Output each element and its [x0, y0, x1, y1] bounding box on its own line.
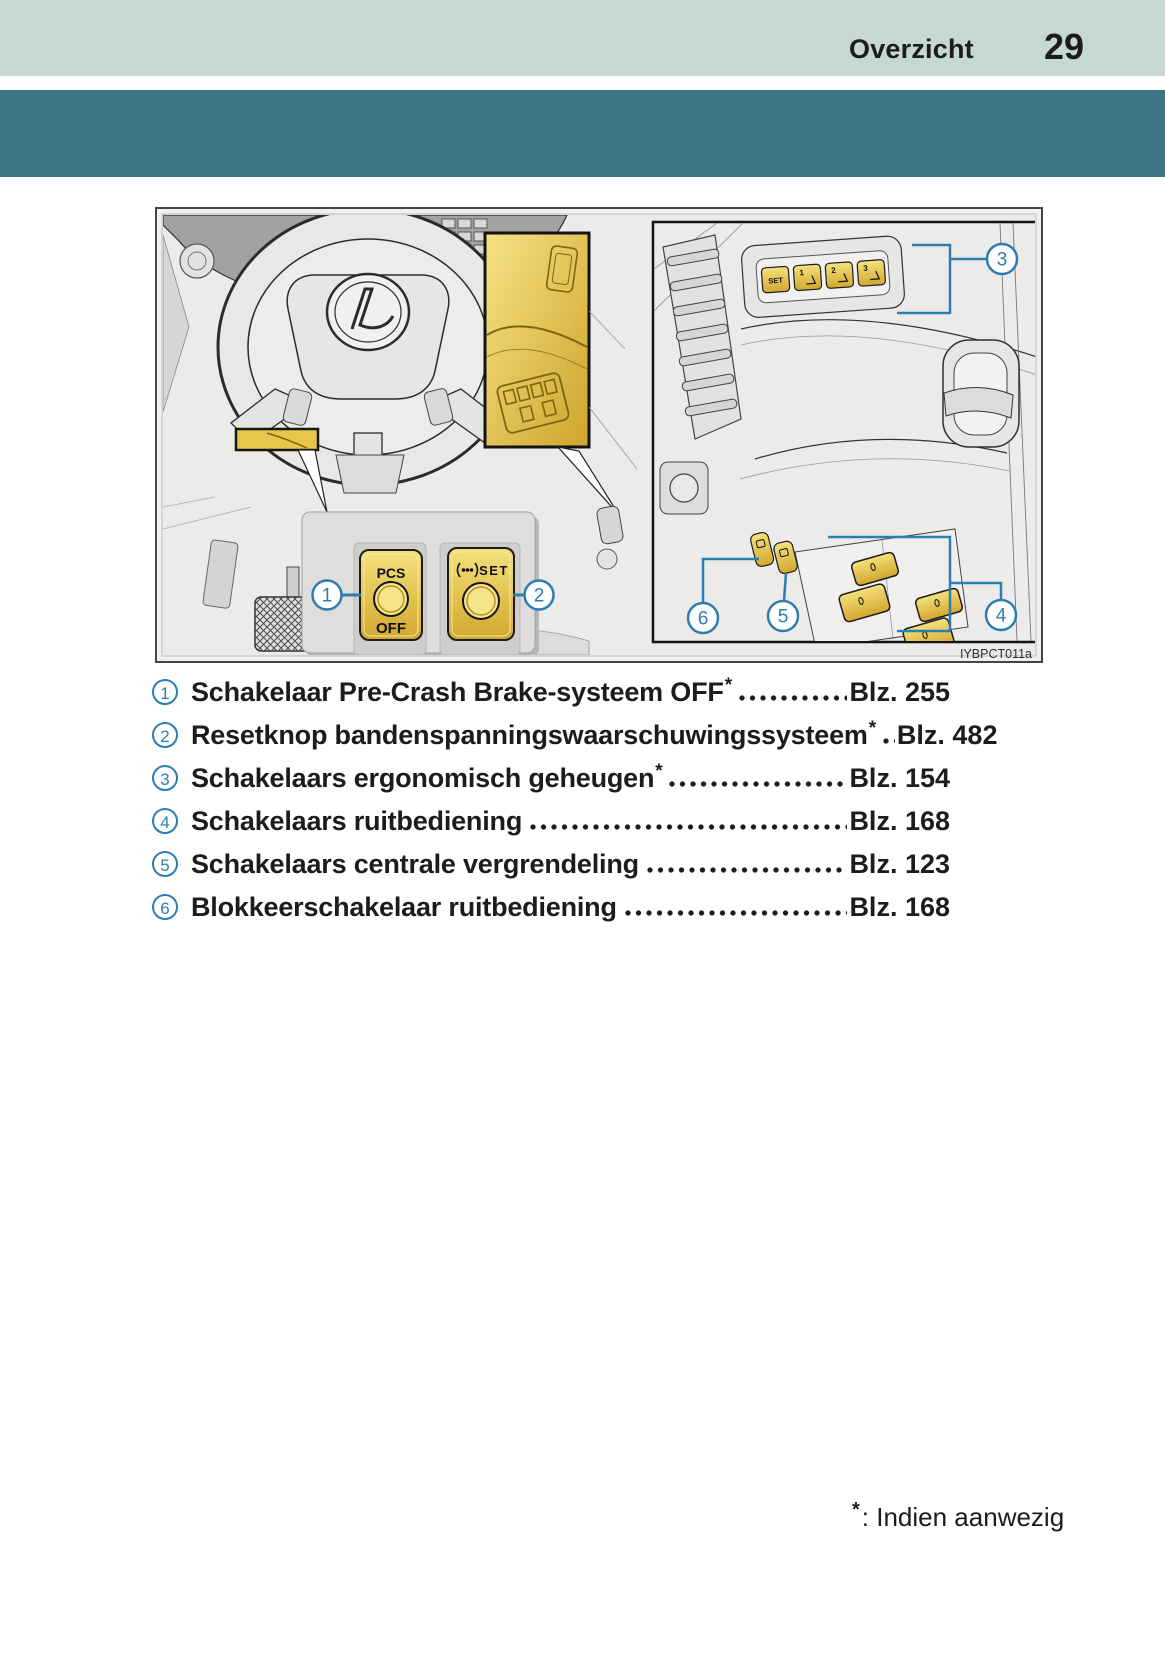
callout-5: 5 [768, 601, 798, 631]
chapter-color-band [0, 90, 1165, 177]
page-reference: Blz. 255 [849, 678, 950, 707]
page-reference: Blz. 123 [849, 850, 950, 879]
page-reference: Blz. 154 [849, 764, 950, 793]
legend-list: 1 Schakelaar Pre-Crash Brake-systeem OFF… [152, 678, 950, 936]
section-title: Overzicht [849, 34, 974, 65]
callout-6: 6 [688, 603, 718, 633]
svg-text:SET: SET [768, 276, 784, 286]
page-reference: Blz. 168 [849, 893, 950, 922]
legend-item-6: 6 Blokkeerschakelaar ruitbediening Blz. … [152, 893, 950, 922]
legend-num-4: 4 [152, 808, 178, 834]
legend-num-6: 6 [152, 894, 178, 920]
svg-text:OFF: OFF [376, 620, 406, 637]
vent-knob [180, 244, 214, 278]
steering-column [336, 455, 404, 493]
legend-num-2: 2 [152, 722, 178, 748]
footnote: *: Indien aanwezig [852, 1502, 1064, 1533]
callout-4: 4 [986, 600, 1016, 630]
footnote-asterisk: * [852, 1499, 860, 1521]
legend-num-3: 3 [152, 765, 178, 791]
figure-caption: IYBPCT011a [960, 647, 1032, 661]
door-pull-handle [943, 340, 1019, 447]
page-number: 29 [1044, 26, 1084, 68]
legend-item-1: 1 Schakelaar Pre-Crash Brake-systeem OFF… [152, 678, 950, 707]
header-band [0, 0, 1165, 76]
footnote-text: : Indien aanwezig [862, 1502, 1064, 1532]
legend-num-1: 1 [152, 679, 178, 705]
svg-text:6: 6 [698, 609, 709, 630]
pcs-off-button: PCS OFF [360, 550, 422, 640]
svg-text:2: 2 [534, 586, 545, 607]
legend-item-2: 2 Resetknop bandenspanningswaarschuwings… [152, 721, 950, 750]
dot-leader [625, 909, 848, 917]
dot-leader [530, 823, 847, 831]
asterisk: * [869, 718, 876, 739]
dot-leader [647, 866, 848, 874]
legend-label: Schakelaars ruitbediening [191, 807, 523, 836]
console-highlight [485, 233, 589, 447]
svg-text:5: 5 [778, 607, 789, 628]
manual-page: Overzicht 29 [0, 0, 1165, 1653]
interior-overview-figure: PCS OFF SET [155, 207, 1043, 663]
lexus-logo [327, 274, 409, 350]
legend-item-3: 3 Schakelaars ergonomisch geheugen* Blz.… [152, 764, 950, 793]
asterisk: * [655, 761, 662, 782]
svg-text:SET: SET [479, 563, 509, 578]
page-reference: Blz. 482 [897, 721, 998, 750]
tpms-set-button: SET [448, 548, 514, 640]
legend-label: Schakelaar Pre-Crash Brake-systeem OFF* [191, 678, 732, 707]
interior-illustration: PCS OFF SET [155, 207, 1043, 663]
callout-3: 3 [987, 244, 1017, 274]
dot-leader [669, 780, 847, 788]
legend-item-5: 5 Schakelaars centrale vergrendeling Blz… [152, 850, 950, 879]
svg-text:1: 1 [322, 586, 333, 607]
legend-label: Blokkeerschakelaar ruitbediening [191, 893, 618, 922]
svg-text:PCS: PCS [377, 565, 406, 581]
dot-leader [883, 737, 895, 745]
legend-num-5: 5 [152, 851, 178, 877]
legend-label: Schakelaars centrale vergrendeling [191, 850, 640, 879]
page-reference: Blz. 168 [849, 807, 950, 836]
svg-text:3: 3 [997, 250, 1008, 271]
asterisk: * [725, 675, 732, 696]
legend-label: Schakelaars ergonomisch geheugen* [191, 764, 662, 793]
legend-label: Resetknop bandenspanningswaarschuwingssy… [191, 721, 876, 750]
dot-leader [739, 694, 848, 702]
legend-item-4: 4 Schakelaars ruitbediening Blz. 168 [152, 807, 950, 836]
seat-memory-panel: SET 1 2 3 [741, 235, 906, 318]
svg-text:4: 4 [996, 606, 1007, 627]
